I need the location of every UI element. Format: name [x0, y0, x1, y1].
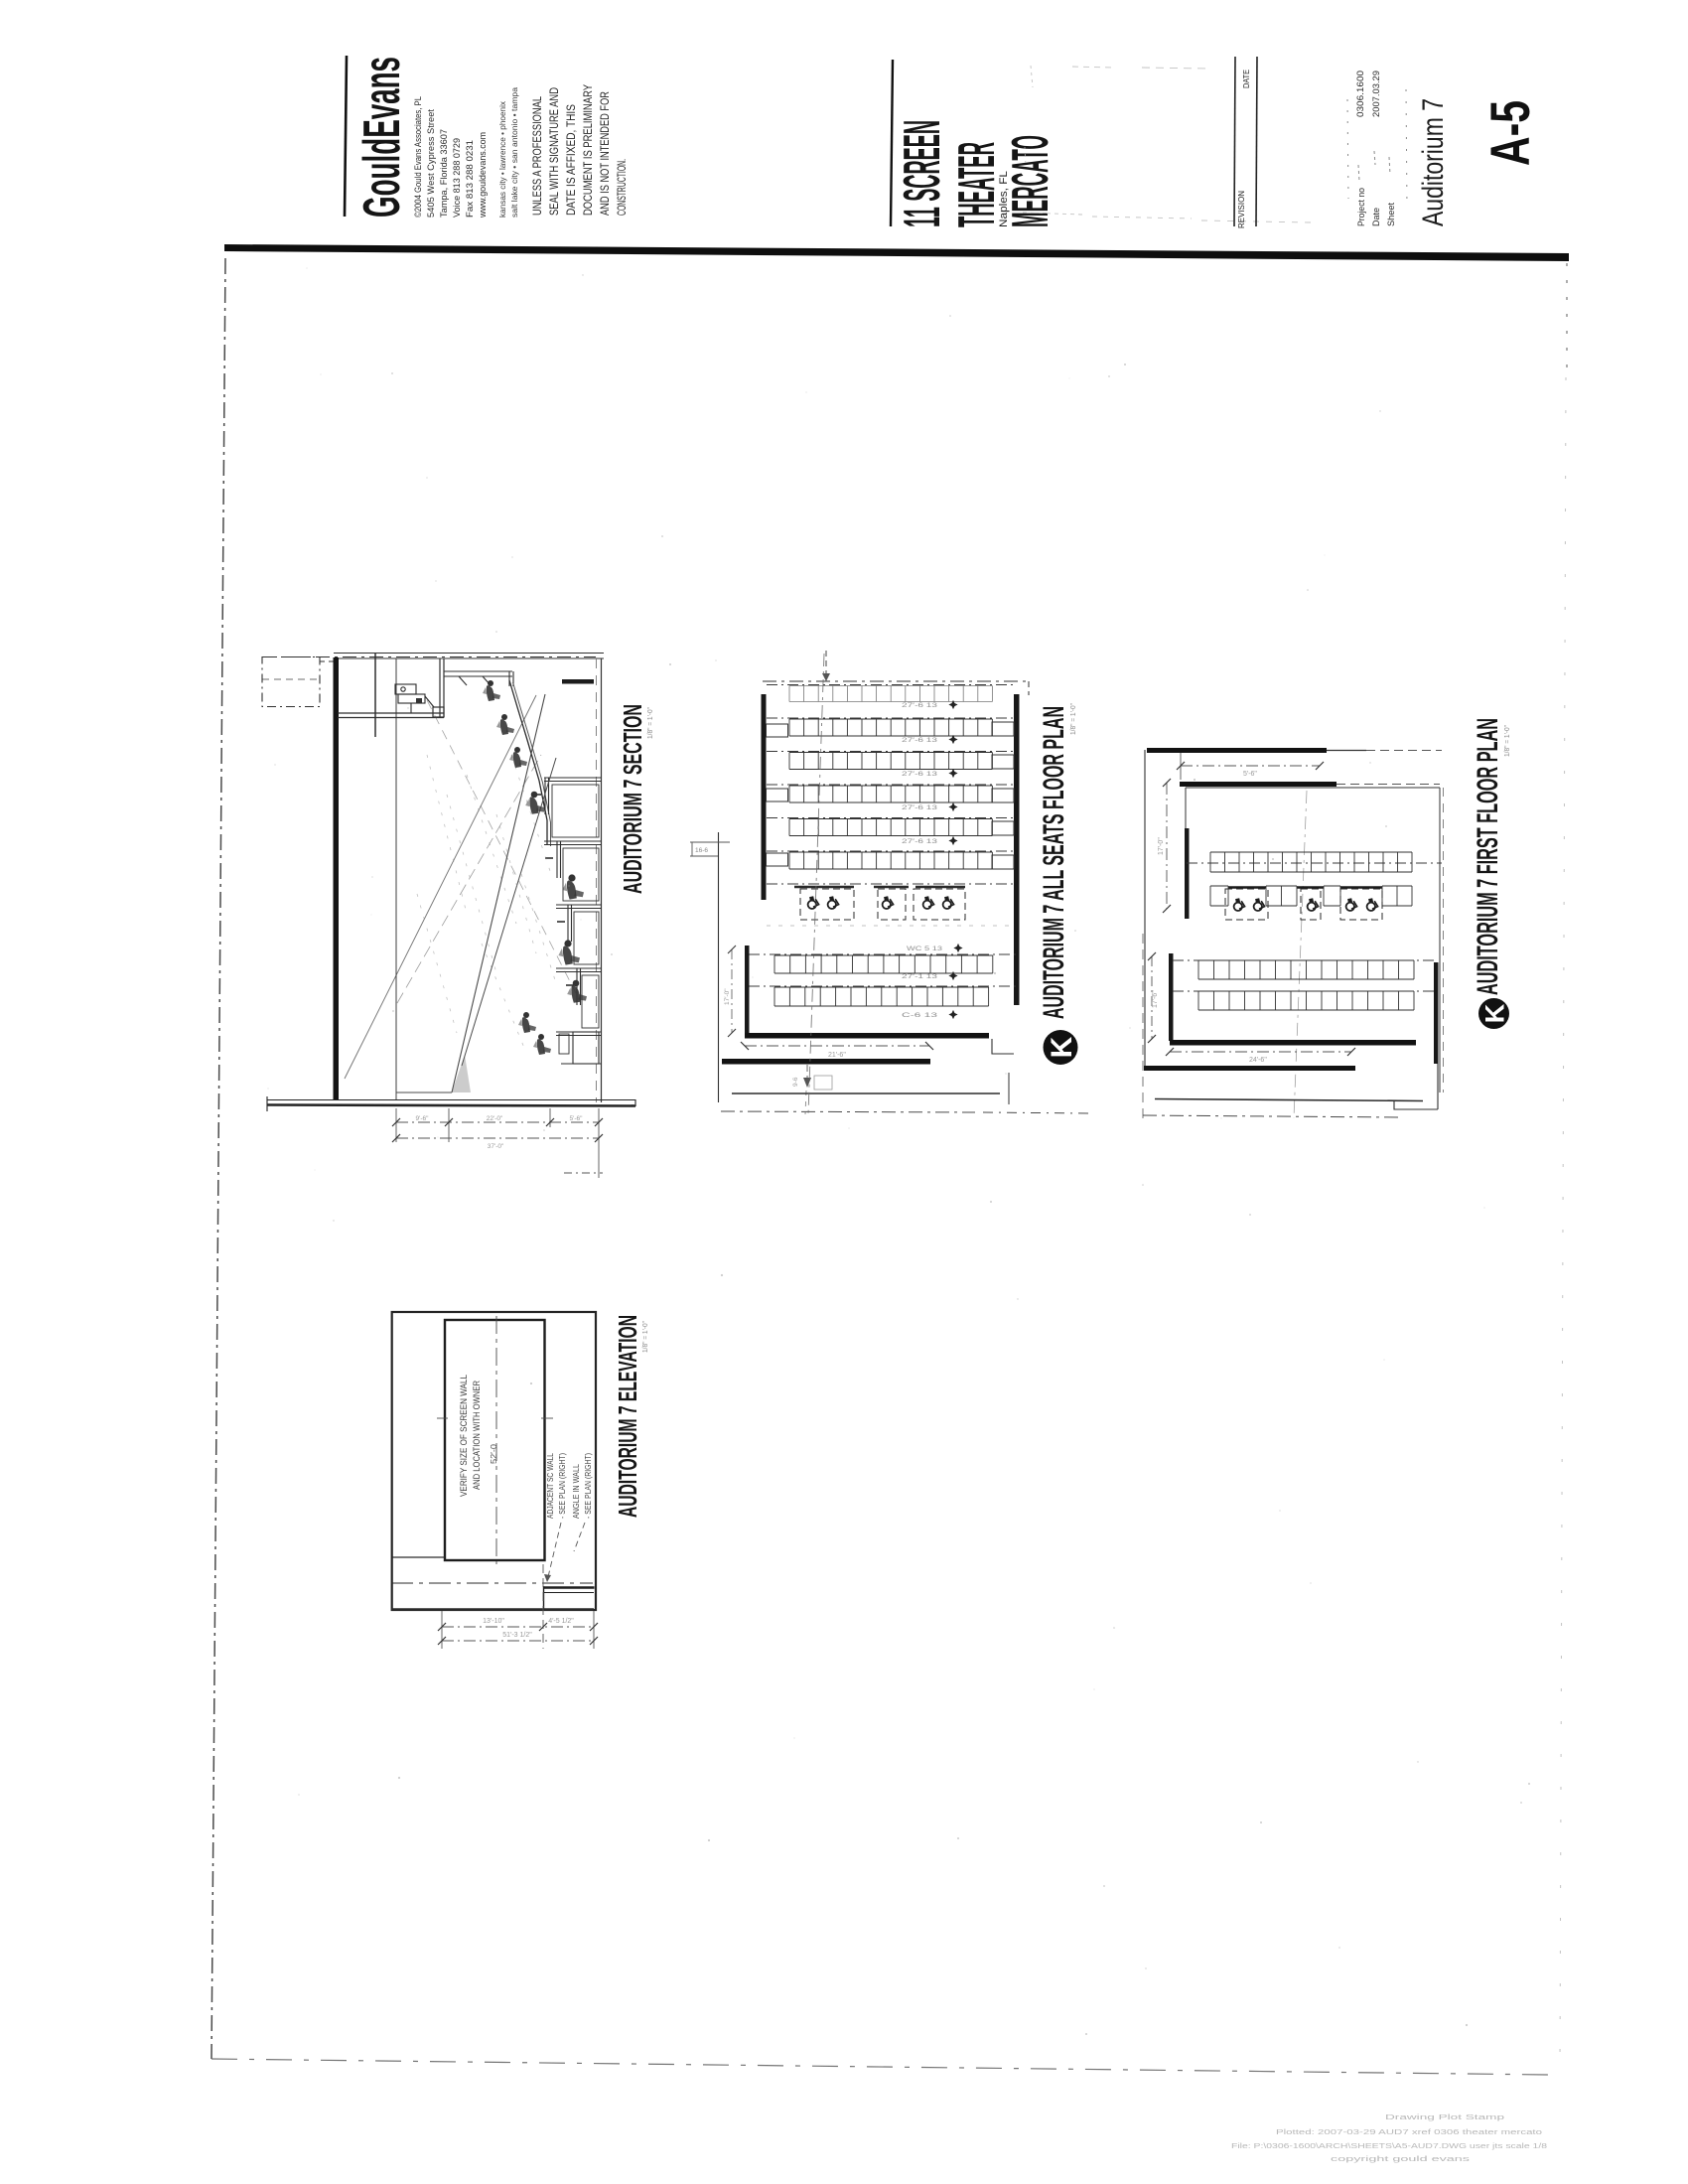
svg-text:- SEE PLAN (RIGHT): - SEE PLAN (RIGHT)	[584, 1453, 593, 1519]
svg-text:WC 5 13: WC 5 13	[907, 946, 943, 952]
svg-text:Date: Date	[1371, 208, 1381, 226]
svg-text:1/8" = 1'-0": 1/8" = 1'-0"	[640, 1321, 649, 1353]
svg-text:VERIFY SIZE OF SCREEN WALL: VERIFY SIZE OF SCREEN WALL	[459, 1375, 470, 1497]
svg-text:K: K	[1480, 1003, 1510, 1023]
svg-text:DATE IS AFFIXED, THIS: DATE IS AFFIXED, THIS	[566, 104, 578, 216]
svg-text:salt lake city • san antonio •: salt lake city • san antonio • tampa	[510, 86, 519, 218]
svg-text:27′-6 13: 27′-6 13	[902, 771, 938, 778]
svg-text:Fax 813 288 0231: Fax 813 288 0231	[465, 140, 476, 218]
svg-text:SEAL WITH SIGNATURE AND: SEAL WITH SIGNATURE AND	[549, 87, 561, 216]
svg-text:MERCATO: MERCATO	[1002, 135, 1059, 227]
svg-text:11 SCREEN: 11 SCREEN	[894, 120, 951, 227]
svg-text:Drawing Plot Stamp: Drawing Plot Stamp	[1385, 2114, 1504, 2121]
svg-text:www.gouldevans.com: www.gouldevans.com	[478, 132, 489, 218]
svg-text:ADJACENT SC WALL: ADJACENT SC WALL	[546, 1453, 555, 1519]
svg-text:AUDITORIUM 7 SECTION: AUDITORIUM 7 SECTION	[618, 704, 647, 894]
svg-text:Auditorium 7: Auditorium 7	[1417, 98, 1450, 226]
svg-text:16-6: 16-6	[695, 847, 708, 854]
svg-text:24′-6": 24′-6"	[1249, 1057, 1267, 1064]
svg-text:27′-6 13: 27′-6 13	[902, 804, 938, 811]
svg-text:kansas city • lawrence • phoen: kansas city • lawrence • phoenix	[498, 101, 507, 218]
svg-text:2007.03.29: 2007.03.29	[1371, 71, 1381, 117]
svg-text:A-5: A-5	[1478, 100, 1541, 166]
svg-text:27′-6 13: 27′-6 13	[902, 702, 938, 709]
svg-text:0306.1600: 0306.1600	[1355, 71, 1365, 117]
svg-text:5′-6": 5′-6"	[1243, 771, 1257, 778]
svg-text:5'-6": 5'-6"	[570, 1115, 584, 1122]
svg-text:21′-6": 21′-6"	[828, 1052, 846, 1059]
svg-text:52′-0: 52′-0	[490, 1443, 498, 1464]
svg-text:9'-6": 9'-6"	[416, 1115, 430, 1122]
svg-text:13′-10": 13′-10"	[483, 1618, 504, 1625]
svg-text:Project no: Project no	[1356, 188, 1366, 226]
svg-text:1/8" = 1'-0": 1/8" = 1'-0"	[1502, 725, 1511, 757]
svg-text:17′-0": 17′-0"	[724, 988, 731, 1005]
svg-text:Voice 813 288 0729: Voice 813 288 0729	[452, 138, 463, 218]
svg-text:27′-6 13: 27′-6 13	[902, 838, 938, 845]
svg-text:AUDITORIUM 7 FIRST FLOOR PLAN: AUDITORIUM 7 FIRST FLOOR PLAN	[1472, 718, 1504, 995]
svg-text:GouldEvans: GouldEvans	[353, 57, 411, 218]
svg-text:27′-1 13: 27′-1 13	[902, 973, 938, 980]
svg-text:17′-0": 17′-0"	[1158, 837, 1165, 855]
svg-text:UNLESS A PROFESSIONAL: UNLESS A PROFESSIONAL	[532, 96, 544, 216]
svg-text:4′-5 1/2": 4′-5 1/2"	[548, 1618, 574, 1625]
svg-text:DOCUMENT IS PRELIMINARY: DOCUMENT IS PRELIMINARY	[583, 84, 595, 216]
svg-text:REVISION: REVISION	[1236, 191, 1246, 228]
svg-text:DATE: DATE	[1241, 70, 1251, 88]
svg-text:Naples, FL: Naples, FL	[998, 171, 1010, 227]
svg-text:5405 West Cypress Street: 5405 West Cypress Street	[426, 109, 437, 218]
svg-text:AND LOCATION WITH OWNER: AND LOCATION WITH OWNER	[472, 1381, 483, 1490]
svg-text:©2004 Gould Evans Associates,: ©2004 Gould Evans Associates, PL	[413, 96, 424, 218]
svg-text:9-6: 9-6	[792, 1077, 799, 1087]
svg-text:ANGLE IN WALL: ANGLE IN WALL	[572, 1464, 581, 1519]
svg-text:C-6 13: C-6 13	[902, 1012, 938, 1019]
svg-text:AND IS NOT INTENDED FOR: AND IS NOT INTENDED FOR	[600, 91, 612, 216]
svg-text:1/8" = 1'-0": 1/8" = 1'-0"	[645, 707, 654, 739]
svg-text:File: P:\0306-1600\ARCH\SHEETS: File: P:\0306-1600\ARCH\SHEETS\A5-AUD7.D…	[1231, 2143, 1547, 2150]
svg-text:copyright gould evans: copyright gould evans	[1331, 2156, 1471, 2163]
svg-text:K: K	[1046, 1036, 1078, 1058]
svg-text:Sheet: Sheet	[1386, 203, 1396, 226]
svg-text:17′-6": 17′-6"	[1152, 990, 1159, 1008]
svg-text:Plotted: 2007-03-29 AUD7 xre: Plotted: 2007-03-29 AUD7 xref 0306 theat…	[1276, 2129, 1542, 2136]
svg-text:CONSTRUCTION.: CONSTRUCTION.	[617, 159, 629, 216]
svg-text:AUDITORIUM 7 ELEVATION: AUDITORIUM 7 ELEVATION	[613, 1315, 642, 1518]
svg-text:Tampa, Florida 33607: Tampa, Florida 33607	[439, 129, 450, 218]
svg-text:AUDITORIUM 7 ALL SEATS FLOOR P: AUDITORIUM 7 ALL SEATS FLOOR PLAN	[1038, 706, 1070, 1019]
svg-text:37'-0": 37'-0"	[488, 1143, 504, 1150]
svg-text:22'-0": 22'-0"	[487, 1115, 503, 1122]
svg-text:1/8" = 1'-0": 1/8" = 1'-0"	[1068, 703, 1077, 735]
svg-text:- SEE PLAN (RIGHT): - SEE PLAN (RIGHT)	[558, 1453, 567, 1519]
svg-text:27′-6 13: 27′-6 13	[902, 737, 938, 744]
svg-text:51′-3 1/2": 51′-3 1/2"	[502, 1632, 532, 1639]
